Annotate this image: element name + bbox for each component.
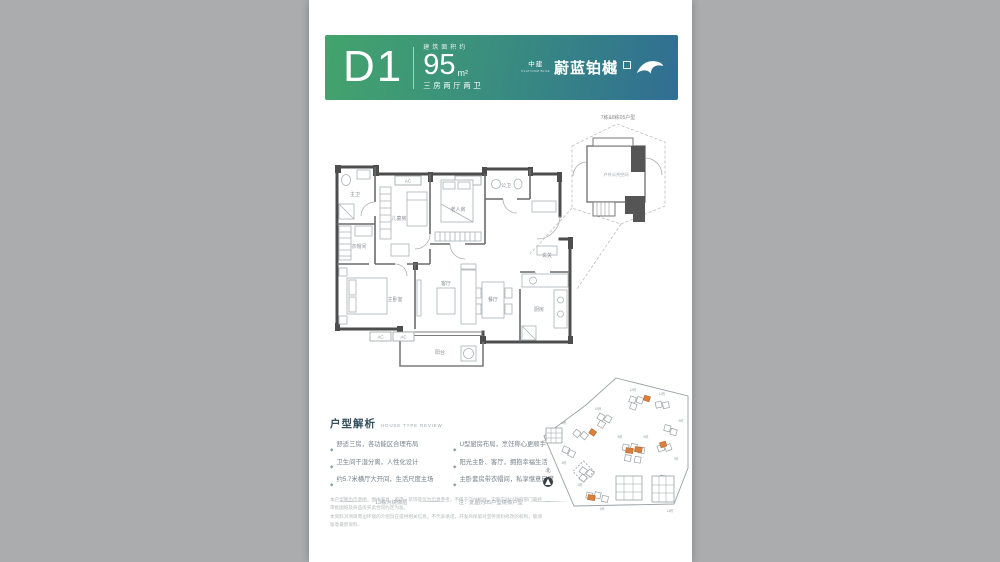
header-banner: D1 建筑面积约 95 m² 三房两厅两卫 中建 PLATINUM BLUE 蔚…: [325, 35, 678, 100]
room-label-foyer: 玄关: [542, 252, 552, 259]
disclaimer-line: 本户型图为示意图，图中家具、家电、装饰等仅为示意参考，不属于交付标准，实际交付以…: [330, 496, 542, 511]
brand-seal-icon: [623, 61, 631, 69]
room-label-living: 客厅: [441, 280, 451, 287]
room-label-master-bath: 主卫: [350, 191, 360, 198]
layout-description: 三房两厅两卫: [423, 82, 483, 90]
room-label-kitchen: 厨房: [534, 306, 544, 313]
callout-title: 7栋&8栋05户型: [601, 114, 635, 121]
svg-text:1栋: 1栋: [600, 506, 606, 511]
disclaimer-block: 本户型图为示意图，图中家具、家电、装饰等仅为示意参考，不属于交付标准，实际交付以…: [330, 496, 542, 530]
bullet-icon: ◆: [330, 443, 333, 456]
callout-space-label: 户外公共空间: [603, 171, 628, 178]
section-title: 户型解析: [330, 416, 376, 431]
room-label-master-bedroom: 主卧室: [387, 296, 402, 303]
bullet-item: ◆舒适三房，各功能区合理布局: [330, 438, 445, 456]
svg-text:5栋: 5栋: [618, 434, 624, 439]
area-label: 建筑面积约: [423, 45, 483, 51]
svg-text:10栋: 10栋: [595, 406, 603, 411]
disclaimer-line: 本资料对项目周边环境的介绍旨在提供相关信息，不代表承诺，开发商保留对宣传资料修改…: [330, 513, 542, 528]
bullet-icon: ◆: [330, 460, 333, 473]
svg-text:6栋: 6栋: [644, 434, 650, 439]
ac-label: AC: [405, 179, 412, 184]
room-label-cloakroom: 衣帽间: [351, 243, 366, 250]
room-label-kids-room: 儿童房: [391, 215, 406, 222]
brand-logo: 中建 PLATINUM BLUE 蔚蓝铂樾: [521, 57, 664, 78]
floorplan-drawing: AC AC AC AC: [325, 104, 686, 375]
room-label-elder-room: 老人房: [450, 206, 465, 213]
room-label-balcony: 阳台: [435, 349, 445, 356]
north-indicator: 北: [543, 467, 553, 487]
brand-latin: PLATINUM BLUE: [521, 70, 550, 73]
area-value: 95: [423, 52, 455, 80]
house-type-review-section: 户型解析 HOUSE TYPE REVIEW ◆舒适三房，各功能区合理布局 ◆卫…: [330, 416, 568, 506]
bullet-item: ◆卫生间干湿分离，人性化设计: [330, 456, 445, 474]
ac-label: AC: [400, 335, 407, 340]
bullet-list-left: ◆舒适三房，各功能区合理布局 ◆卫生间干湿分离，人性化设计 ◆约5.7米横厅大开…: [330, 438, 445, 491]
bullet-icon: ◆: [330, 478, 333, 491]
north-label: 北: [545, 467, 550, 474]
room-label-dining: 餐厅: [488, 296, 498, 303]
site-plan: 12栋 11栋 10栋 9栋 8栋 7栋 6栋 5栋 3栋 2栋 1栋 13栋 …: [538, 372, 692, 516]
svg-text:3栋: 3栋: [562, 460, 568, 465]
svg-text:13栋: 13栋: [667, 508, 675, 513]
area-unit: m²: [458, 69, 469, 78]
bullet-icon: ◆: [453, 478, 456, 491]
screenshot-root: { "page": { "bg": "#aaacae", "paper": "#…: [0, 0, 1000, 562]
room-label-public-bath: 公卫: [501, 183, 511, 189]
area-block: 建筑面积约 95 m² 三房两厅两卫: [423, 45, 483, 90]
svg-text:8栋: 8栋: [562, 420, 568, 425]
bullet-icon: ◆: [453, 443, 456, 456]
svg-text:12栋: 12栋: [630, 387, 638, 392]
section-subtitle: HOUSE TYPE REVIEW: [381, 423, 443, 428]
whale-tail-icon: [636, 59, 664, 76]
callout-plan: 户外公共空间: [573, 138, 662, 222]
unit-code: D1: [343, 45, 403, 89]
bullet-icon: ◆: [453, 460, 456, 473]
ac-label: AC: [377, 335, 384, 340]
bullet-item: ◆约5.7米横厅大开间，生活尺度主场: [330, 473, 445, 491]
banner-divider: [413, 47, 414, 89]
svg-text:7栋: 7栋: [674, 456, 680, 461]
brand-prefix: 中建: [528, 62, 543, 69]
brand-name: 蔚蓝铂樾: [554, 57, 618, 78]
svg-text:2栋: 2栋: [578, 482, 584, 487]
flyer-page: D1 建筑面积约 95 m² 三房两厅两卫 中建 PLATINUM BLUE 蔚…: [309, 0, 692, 562]
svg-text:11栋: 11栋: [659, 391, 666, 396]
svg-text:9栋: 9栋: [679, 418, 685, 423]
